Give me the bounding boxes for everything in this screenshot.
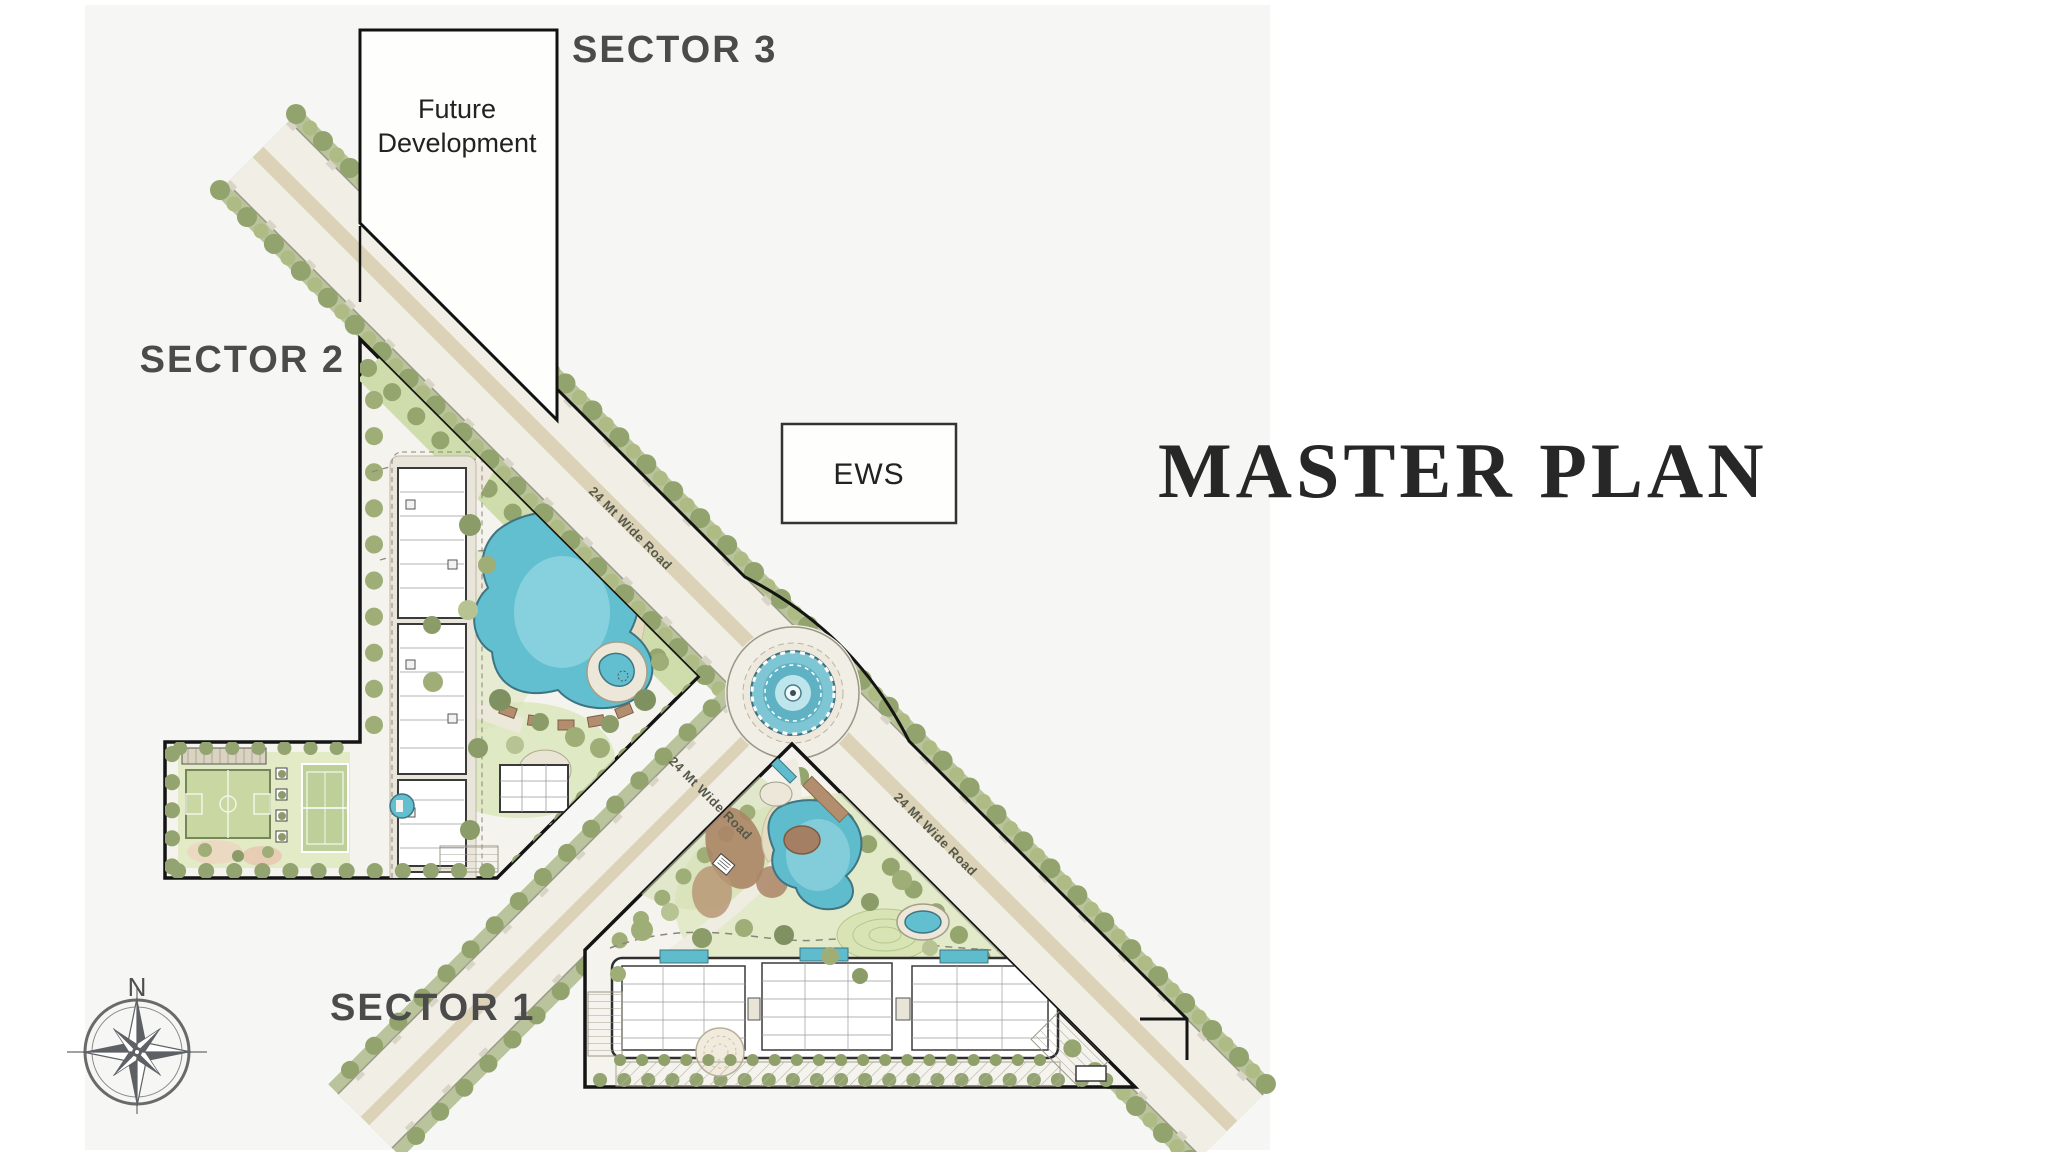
ews-label: EWS <box>833 458 904 491</box>
parking-west <box>588 992 622 1056</box>
ews-parcel: EWS <box>782 424 956 523</box>
master-plan-figure: Future Development EWS 24 Mt Wide Road 2… <box>0 0 2048 1152</box>
trellis-band <box>616 1062 1060 1086</box>
clubhouse-building <box>500 765 568 812</box>
future-development-label-line1: Future <box>418 94 496 124</box>
oval-pool <box>905 911 941 933</box>
future-development-label-line2: Development <box>377 128 537 158</box>
sector-2-label: SECTOR 2 <box>140 339 345 381</box>
compass-north-label: N <box>128 972 147 1002</box>
sector-3-label: SECTOR 3 <box>572 29 777 71</box>
page-title: MASTER PLAN <box>1158 427 1768 514</box>
sector-1-label: SECTOR 1 <box>330 987 535 1029</box>
master-plan-page: Future Development EWS 24 Mt Wide Road 2… <box>0 0 2048 1152</box>
roundabout <box>725 625 861 761</box>
